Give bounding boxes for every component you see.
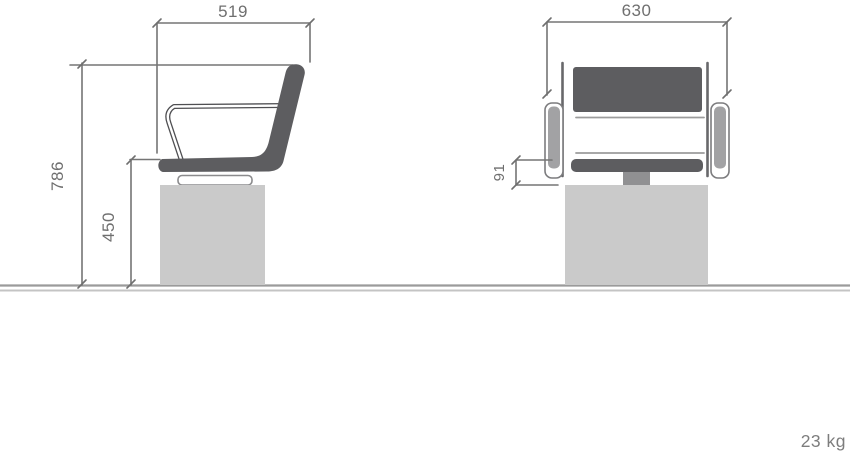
dim-seat-height: 450 (99, 156, 160, 288)
front-backrest (573, 67, 702, 112)
front-armrest-right (711, 103, 729, 178)
front-armrest-left (545, 103, 563, 178)
dim-overall-height: 786 (48, 60, 86, 288)
side-seat-mount (178, 176, 252, 186)
dim-side-width-label: 519 (218, 2, 248, 21)
dim-front-width-label: 630 (622, 1, 652, 20)
dimension-diagram-canvas: 786 519 450 (0, 0, 850, 458)
side-base (160, 185, 265, 285)
front-armrest-right-pad (714, 107, 726, 169)
dim-seat-height-label: 450 (99, 212, 118, 242)
weight-label: 23 kg (801, 431, 846, 451)
dim-overall-height-label: 786 (48, 161, 67, 191)
front-seat (571, 159, 703, 172)
front-base (565, 185, 708, 285)
front-stem (623, 172, 650, 185)
front-view: 630 (491, 1, 731, 285)
dim-seat-thickness-label: 91 (491, 164, 508, 182)
product-dimension-diagram: 786 519 450 (0, 0, 850, 458)
side-view: 786 519 450 (48, 2, 314, 288)
